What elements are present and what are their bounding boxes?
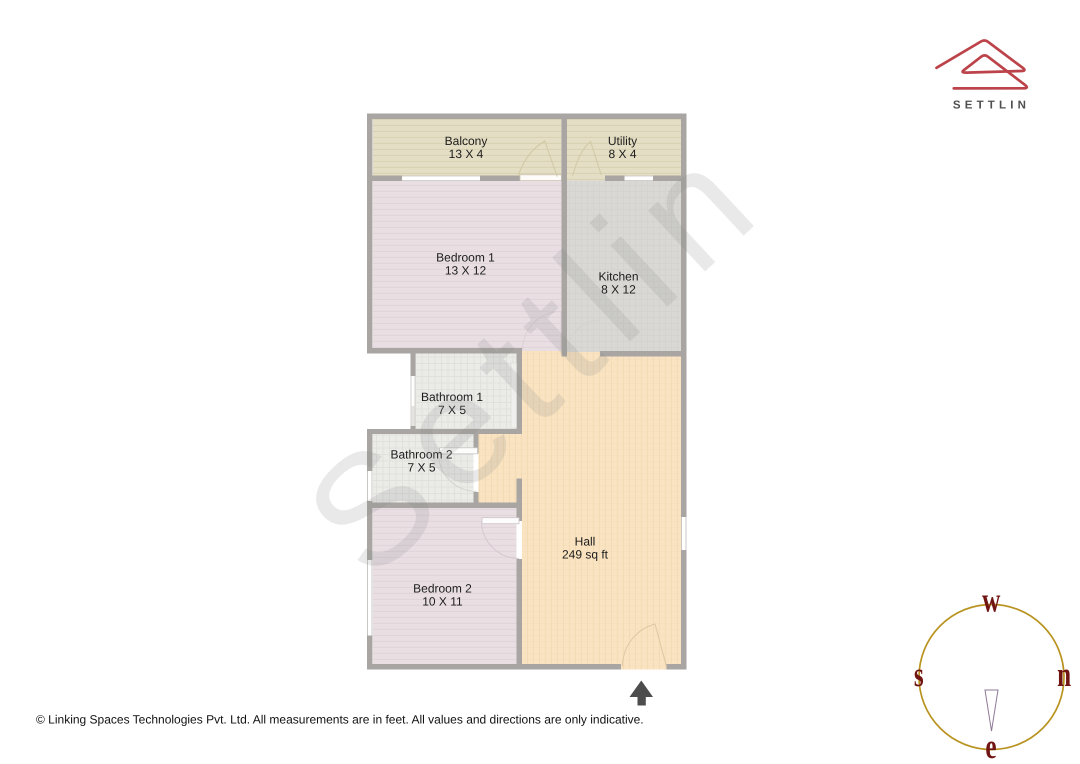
svg-text:13 X 4: 13 X 4 <box>449 147 484 161</box>
svg-text:n: n <box>1057 655 1071 694</box>
svg-text:13 X 12: 13 X 12 <box>445 264 487 278</box>
svg-text:Balcony: Balcony <box>445 134 488 148</box>
svg-text:Hall: Hall <box>575 535 596 549</box>
svg-text:© Linking Spaces Technologies: © Linking Spaces Technologies Pvt. Ltd. … <box>36 713 644 727</box>
svg-text:e: e <box>985 727 996 764</box>
svg-text:Bedroom 1: Bedroom 1 <box>436 251 495 265</box>
svg-text:Bedroom 2: Bedroom 2 <box>413 582 472 596</box>
svg-text:s: s <box>914 655 924 694</box>
svg-text:w: w <box>982 580 1001 619</box>
svg-text:10 X 11: 10 X 11 <box>422 595 463 609</box>
svg-text:SETTLIN: SETTLIN <box>953 100 1030 112</box>
svg-text:249 sq ft: 249 sq ft <box>562 548 609 562</box>
